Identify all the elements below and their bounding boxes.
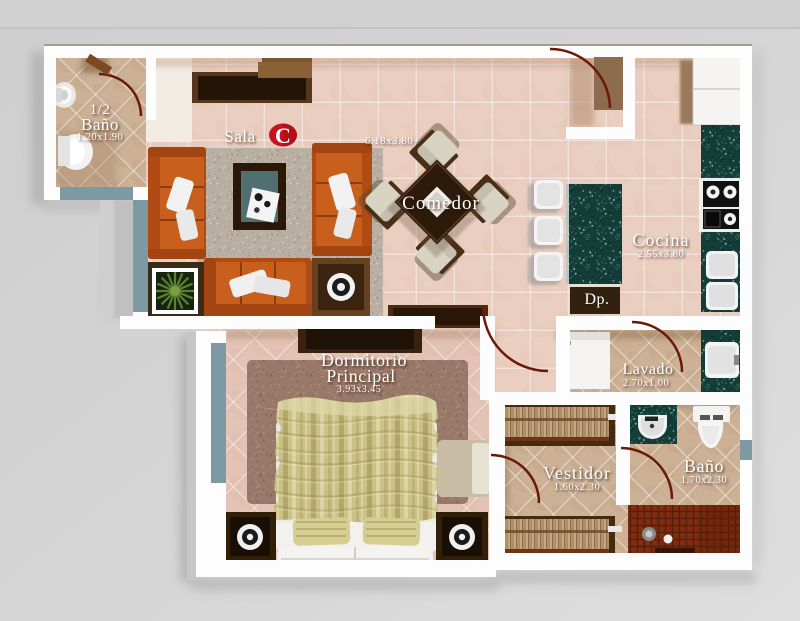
svg-text:Cocina: Cocina xyxy=(633,230,690,250)
svg-text:2.70x1.00: 2.70x1.00 xyxy=(623,378,670,389)
svg-text:C: C xyxy=(275,123,291,148)
svg-text:Dp.: Dp. xyxy=(584,291,609,308)
svg-text:Principal: Principal xyxy=(326,366,396,386)
svg-text:6.18x3.80: 6.18x3.80 xyxy=(365,135,414,147)
svg-text:Comedor: Comedor xyxy=(402,193,480,214)
svg-text:1.60x2.30: 1.60x2.30 xyxy=(554,482,601,493)
svg-text:Vestidor: Vestidor xyxy=(543,463,611,483)
svg-text:2.55x3.80: 2.55x3.80 xyxy=(638,249,685,260)
svg-text:Sala: Sala xyxy=(224,127,255,146)
svg-text:Lavado: Lavado xyxy=(623,361,674,378)
svg-text:1.70x2.30: 1.70x2.30 xyxy=(681,475,728,486)
svg-text:1.20x1.90: 1.20x1.90 xyxy=(77,132,124,143)
svg-text:Baño: Baño xyxy=(684,456,724,476)
svg-text:3.93x3.45: 3.93x3.45 xyxy=(337,384,382,395)
